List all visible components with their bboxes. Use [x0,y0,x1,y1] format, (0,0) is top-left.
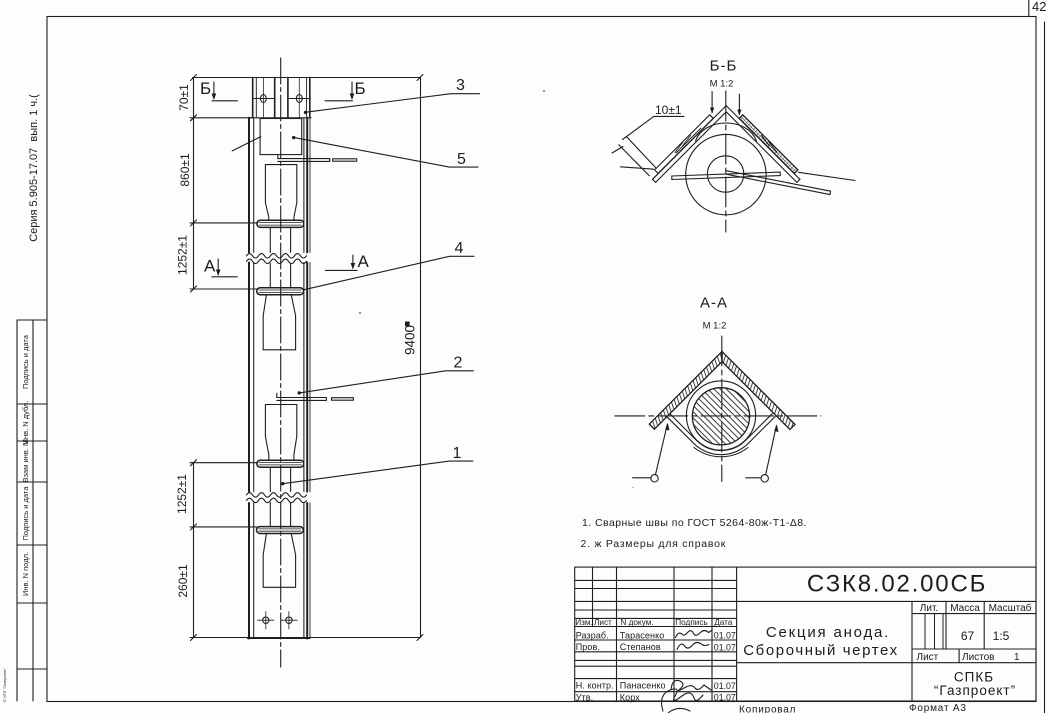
svg-text:Лист: Лист [594,618,612,627]
svg-text:Подпись: Подпись [675,618,707,627]
svg-text:Листов: Листов [962,652,995,663]
svg-text:“Газпроект”: “Газпроект” [934,683,1016,698]
svg-text:Серия 5.905-17.07 вып. 1 ч.(: Серия 5.905-17.07 вып. 1 ч.( [28,94,40,242]
svg-text:2. ж Размеры для справок: 2. ж Размеры для справок [581,538,727,550]
svg-text:А-А: А-А [700,295,728,312]
svg-text:Формат А3: Формат А3 [909,703,967,713]
svg-text:Панасенко: Панасенко [620,681,666,691]
svg-text:67: 67 [961,629,975,643]
svg-text:1252±1: 1252±1 [176,235,190,275]
svg-text:Дата: Дата [714,618,733,627]
svg-text:Подпись и дата: Подпись и дата [21,486,30,541]
svg-text:Масса: Масса [950,603,980,614]
svg-text:Лист: Лист [917,652,939,663]
svg-text:СЗК8.02.00СБ: СЗК8.02.00СБ [807,571,987,598]
svg-text:Тарасенко: Тарасенко [620,630,665,640]
svg-text:4: 4 [455,240,464,257]
svg-text:1: 1 [453,445,462,462]
svg-text:М 1:2: М 1:2 [703,321,727,332]
svg-text:Сборочный чертех: Сборочный чертех [743,642,899,659]
svg-text:N докум.: N докум. [620,618,653,627]
svg-text:Копировал: Копировал [739,705,796,713]
svg-text:01.07: 01.07 [714,642,736,652]
svg-text:Секция анода.: Секция анода. [766,624,890,641]
svg-text:01.07: 01.07 [714,681,736,691]
svg-text:Разраб.: Разраб. [576,630,609,640]
svg-text:70±1: 70±1 [177,84,191,111]
svg-text:9400: 9400 [403,325,418,355]
svg-text:Инв. N подл.: Инв. N подл. [21,552,30,596]
svg-text:1252±1: 1252±1 [175,474,189,514]
svg-text:01.07: 01.07 [714,692,736,702]
svg-text:Изм.: Изм. [575,618,593,627]
svg-text:М 1:2: М 1:2 [710,79,734,90]
svg-text:260±1: 260±1 [176,564,190,598]
svg-text:Б-Б: Б-Б [710,58,738,75]
svg-text:42: 42 [1032,0,1046,14]
svg-text:1: 1 [1014,652,1020,663]
svg-text:5: 5 [457,151,466,168]
svg-text:Б: Б [355,79,366,98]
svg-text:1:5: 1:5 [993,629,1010,643]
svg-text:2: 2 [454,355,463,372]
svg-text:Степанов: Степанов [620,642,661,652]
svg-text:1. Сварные швы по ГОСТ 5264-80: 1. Сварные швы по ГОСТ 5264-80ж-Т1-Δ8. [582,517,807,529]
svg-text:Лит.: Лит. [920,603,938,614]
svg-text:860±1: 860±1 [178,153,192,187]
svg-text:01.07: 01.07 [714,631,736,641]
svg-text:Б: Б [200,79,211,98]
svg-text:Пров.: Пров. [576,642,600,652]
svg-text:© ИПГ “Газпроект”: © ИПГ “Газпроект” [2,667,7,702]
svg-text:А: А [358,252,370,271]
svg-text:3: 3 [456,77,465,94]
svg-text:Взам инв. N: Взам инв. N [21,441,30,483]
svg-text:Масштаб: Масштаб [989,602,1032,614]
svg-text:Подпись и дата: Подпись и дата [21,334,30,389]
svg-text:Утв.: Утв. [576,692,594,702]
svg-text:10±1: 10±1 [655,103,682,117]
svg-text:Корх: Корх [620,692,640,702]
svg-text:Инв. N дубл.: Инв. N дубл. [21,401,30,445]
svg-text:А: А [204,257,216,276]
svg-text:Н. контр.: Н. контр. [576,681,614,691]
